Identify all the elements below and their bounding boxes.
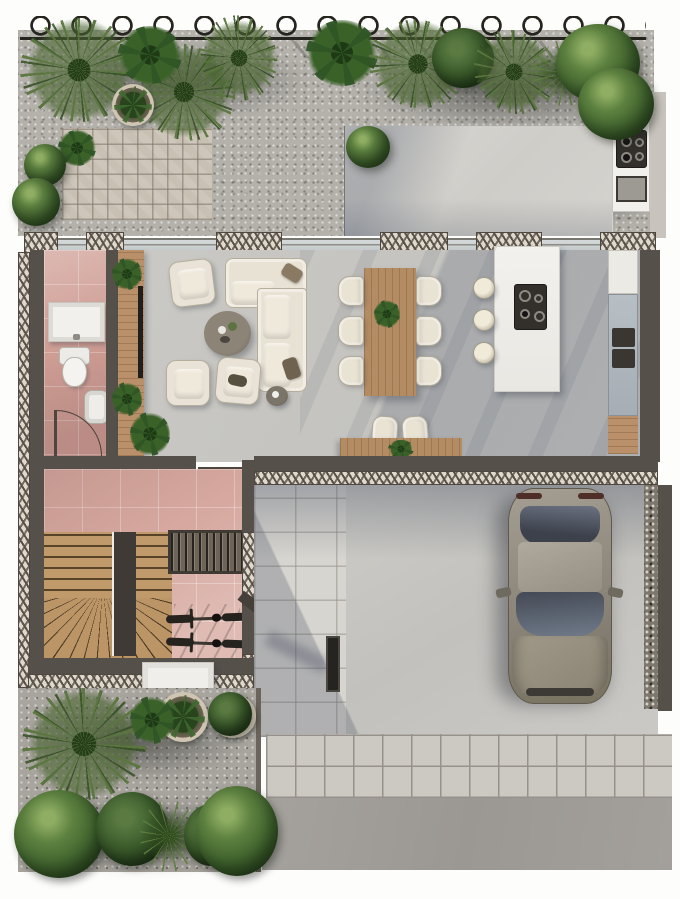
leafy-plant xyxy=(118,26,182,84)
dining-chair xyxy=(338,276,364,306)
pebble-strip xyxy=(644,485,658,709)
console-plant xyxy=(112,258,142,290)
right-wall xyxy=(640,250,660,462)
car-grille xyxy=(526,688,594,696)
left-wall-hatch xyxy=(18,252,30,688)
vanity-faucet xyxy=(73,334,80,340)
kitchen-wall-counter-wood xyxy=(608,416,638,454)
floor-plan-canvas xyxy=(0,0,680,899)
appliance-handle xyxy=(612,349,635,368)
island-cooktop xyxy=(514,284,547,330)
armchair-cushion xyxy=(176,267,209,300)
bike-saddle xyxy=(212,639,221,647)
bollard-pillar xyxy=(326,636,340,692)
potted-shrub xyxy=(208,692,252,736)
bike-handlebar xyxy=(190,609,194,629)
front-palm xyxy=(22,688,146,800)
sidewalk xyxy=(262,798,672,870)
left-wall xyxy=(30,250,44,674)
garage-wall-hatch xyxy=(254,471,658,485)
armchair xyxy=(167,257,216,308)
island-stool xyxy=(473,309,495,331)
leafy-plant xyxy=(130,696,174,744)
burner-icon xyxy=(621,152,632,163)
bicycle xyxy=(166,607,251,632)
dining-table xyxy=(364,268,416,396)
coffee-table-plant xyxy=(228,322,237,331)
burner-icon xyxy=(534,294,543,303)
armchair xyxy=(166,360,210,406)
paver-apron xyxy=(266,734,672,798)
walkway-shadow xyxy=(254,485,374,737)
coffee-table-cup xyxy=(218,326,226,334)
island-stool xyxy=(473,277,495,299)
car-windshield xyxy=(516,592,604,636)
front-shrub xyxy=(196,786,278,876)
burner-icon xyxy=(519,290,531,302)
burner-icon xyxy=(635,152,644,161)
front-wall-cap xyxy=(28,658,254,674)
table-centerpiece-plant xyxy=(374,300,400,328)
burner-icon xyxy=(635,138,644,147)
car-taillight xyxy=(516,493,542,499)
tv xyxy=(138,286,143,378)
front-shrub xyxy=(14,790,104,878)
stair-stringer xyxy=(112,532,136,656)
car-rear-window xyxy=(520,506,600,544)
kitchen-wall-counter-white xyxy=(608,250,638,294)
dining-chair xyxy=(416,356,442,386)
side-table-cup xyxy=(272,391,279,398)
large-shrub xyxy=(578,68,654,140)
coffee-table-tray xyxy=(220,336,230,343)
potted-plant-leaves xyxy=(114,86,152,124)
garage-wall-cap xyxy=(254,456,658,471)
appliance-handle xyxy=(612,328,635,347)
leafy-plant xyxy=(306,20,378,86)
terrace-shrub xyxy=(346,126,390,168)
dining-chair xyxy=(416,316,442,346)
burner-icon xyxy=(534,311,545,322)
car xyxy=(500,484,620,708)
armchair-cushion xyxy=(174,369,204,399)
bathroom-door-leaf xyxy=(54,410,57,457)
right-boundary-wall xyxy=(658,485,672,711)
toilet-bowl xyxy=(62,357,87,387)
bike-handlebar xyxy=(190,632,194,652)
car-taillight xyxy=(578,493,604,499)
island-stool xyxy=(473,342,495,364)
bicycle xyxy=(166,632,251,657)
console-plant xyxy=(112,382,142,416)
dining-chair xyxy=(416,276,442,306)
hall-top-wall xyxy=(44,456,196,469)
bike-saddle xyxy=(212,614,221,622)
car-hood xyxy=(512,636,608,696)
dining-chair xyxy=(338,356,364,386)
burner-icon xyxy=(520,309,530,319)
outdoor-grill xyxy=(616,176,647,202)
floor-plant xyxy=(130,412,170,456)
sofa-seat xyxy=(263,295,291,339)
dining-chair xyxy=(338,316,364,346)
coffee-table xyxy=(204,311,251,356)
shrub xyxy=(12,178,60,226)
car-roof xyxy=(518,542,602,592)
